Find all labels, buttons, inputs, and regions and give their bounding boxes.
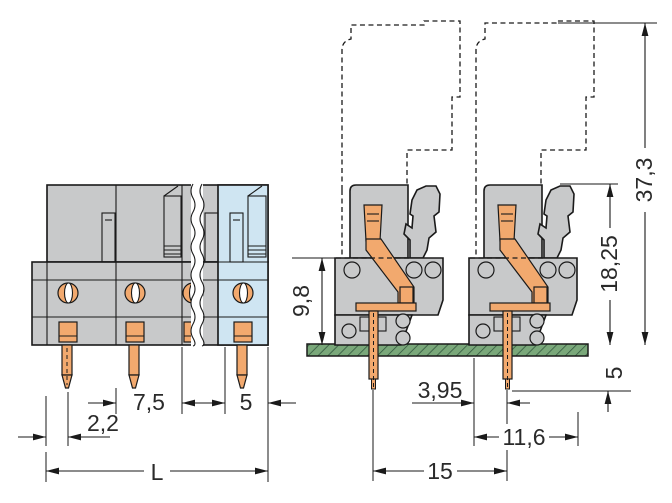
front-view: 7,5 5 2,2 L <box>18 184 296 485</box>
dim-pole-pitch: 7,5 <box>88 347 210 415</box>
phantom-mating-connector-1 <box>342 21 460 190</box>
dim-label: 3,95 <box>418 377 463 403</box>
dim-label: 5 <box>601 367 627 380</box>
technical-drawing-page: 37,3 18,25 9,8 5 3,95 <box>0 0 672 503</box>
connector-pole-2 <box>469 185 577 389</box>
connector-pole-1 <box>335 185 443 389</box>
dim-pin-below-board: 5 <box>512 367 631 412</box>
dim-label: 11,6 <box>502 424 545 450</box>
dim-label: 7,5 <box>133 389 165 415</box>
dim-label: 9,8 <box>288 285 314 317</box>
dim-label: 18,25 <box>596 235 622 293</box>
front-pins <box>62 345 247 388</box>
dim-body-depth: 11,6 <box>474 412 578 450</box>
dim-label: L <box>151 459 164 485</box>
dim-total-length: L <box>46 452 268 485</box>
technical-drawing: 37,3 18,25 9,8 5 3,95 <box>0 0 672 503</box>
dim-front-height: 9,8 <box>288 258 336 345</box>
dim-edge-offset: 2,2 <box>18 392 119 446</box>
dim-label: 5 <box>240 389 253 415</box>
variant-pole-blue <box>218 185 268 345</box>
phantom-mating-connector-2 <box>476 21 594 190</box>
break-lines <box>191 184 204 346</box>
side-view: 37,3 18,25 9,8 5 3,95 <box>288 21 657 484</box>
dim-label: 37,3 <box>631 158 657 203</box>
dim-label: 15 <box>427 458 453 484</box>
dim-label: 2,2 <box>87 410 119 436</box>
